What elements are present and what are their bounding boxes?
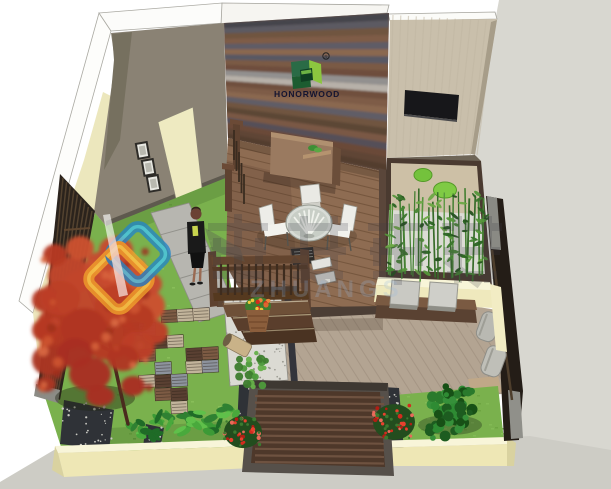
svg-text:ZHUANGS: ZHUANGS (250, 276, 404, 303)
svg-text:HONORWOOD: HONORWOOD (274, 89, 340, 99)
